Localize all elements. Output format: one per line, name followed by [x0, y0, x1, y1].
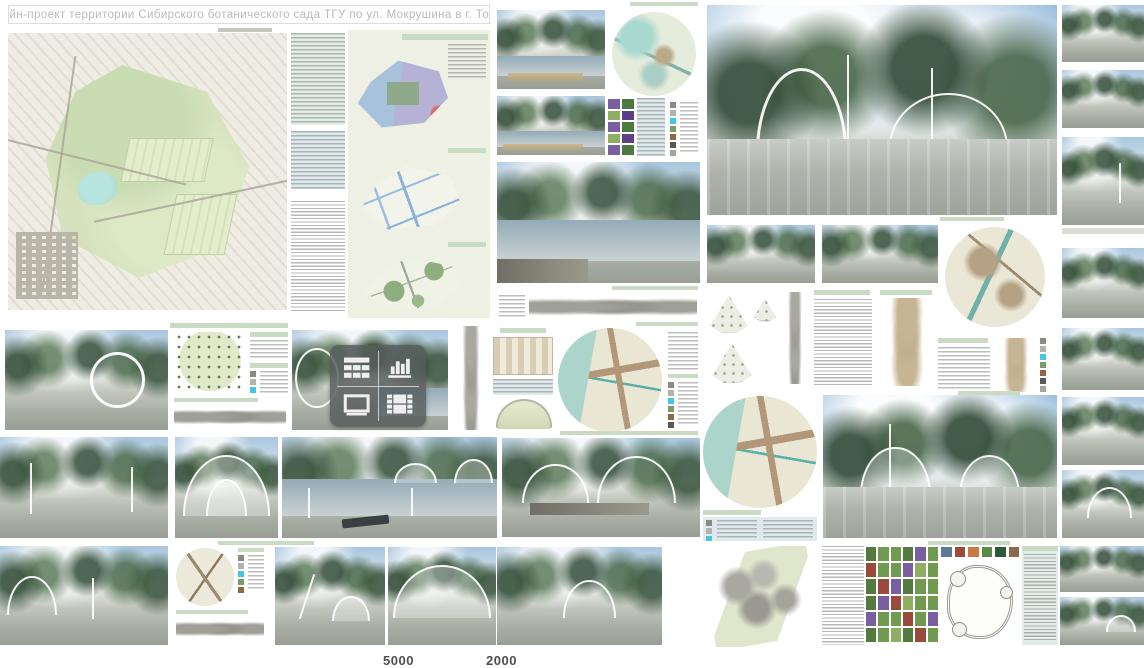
- siteplan-legend-lines: [260, 371, 288, 393]
- dome-frame-structure: [959, 455, 1020, 495]
- film-icon: [382, 390, 419, 420]
- render-pathway-2: [822, 225, 938, 283]
- furniture-row-header: [174, 398, 258, 402]
- wooden-deck: [503, 144, 583, 150]
- info-box-legend: [291, 131, 345, 189]
- render-arch-gate: [5, 330, 168, 430]
- planting-text-column: [822, 546, 864, 645]
- light-pole: [1119, 163, 1121, 203]
- render-tent-canopy: [388, 547, 496, 645]
- light-pole: [889, 424, 891, 498]
- masterplan-pond: [78, 172, 117, 205]
- render-lake-shoreline: [497, 162, 700, 283]
- render-playground: [497, 547, 662, 645]
- masterplan-map: [8, 33, 287, 310]
- greenhouse-axonometric: [703, 546, 818, 647]
- mast-structure: [299, 573, 315, 618]
- axon-sketches: [529, 293, 697, 321]
- plaza-caption: [560, 431, 698, 435]
- light-pole: [30, 463, 32, 514]
- light-pole: [847, 55, 849, 156]
- location-inset-map-4: [558, 328, 662, 432]
- notes-header: [1022, 546, 1058, 551]
- render-park-walkway: [0, 437, 168, 538]
- floor-plan: [493, 337, 553, 375]
- tensile-canopy: [522, 464, 589, 504]
- location-inset-map-2: [945, 227, 1045, 327]
- render-sculpture-corner: [275, 547, 385, 645]
- legend-chips: [668, 382, 676, 428]
- play-structure: [563, 580, 616, 617]
- cyan-light-marker: [1006, 501, 1015, 510]
- greenhouse-3d-sketch: [703, 546, 818, 647]
- plant-palette-small: [608, 99, 634, 155]
- furniture-sketches: [174, 405, 286, 429]
- sun-lounger: [342, 514, 390, 528]
- zoning-axonometric: [356, 56, 448, 132]
- detail-sketch-column: [455, 326, 487, 430]
- render-dome-garden: [175, 437, 278, 538]
- render-pond-deck-1: [497, 10, 605, 89]
- flower-bush: [968, 496, 994, 512]
- light-pole: [308, 488, 310, 518]
- planter-wall: [530, 503, 649, 515]
- detail-sketches: [176, 617, 264, 641]
- masterplan-caption: [218, 28, 272, 32]
- bar-chart-icon: [382, 353, 419, 383]
- legend-header: [938, 338, 988, 343]
- greenery-axonometric: [362, 254, 462, 314]
- legend-chips: [706, 520, 714, 540]
- info-text-paragraphs: [291, 201, 345, 313]
- ring-plan-panel: [941, 561, 1019, 645]
- map-legend-header: [703, 510, 761, 515]
- shore-dome-structure: [394, 463, 437, 483]
- masterplan-buildings: [16, 232, 77, 298]
- siteplan-panel: [172, 330, 290, 432]
- plant-palette-grid: [866, 547, 938, 642]
- axon-notes: [499, 295, 525, 319]
- info-box-description: [291, 33, 345, 125]
- legend-lines: [680, 102, 698, 152]
- lake-water: [282, 479, 497, 515]
- diagram-2-header: [448, 148, 486, 153]
- furniture-vignettes: [880, 298, 934, 386]
- detail-circle-plan: [176, 548, 234, 606]
- design-board-collage: Дизайн-проект территории Сибирского бота…: [0, 0, 1144, 664]
- pavilion-legend-chips: [1040, 338, 1058, 392]
- notes-lines: [1024, 554, 1056, 642]
- waterfront-section-caption: [630, 2, 698, 6]
- dimension-label-right: 2000: [486, 654, 517, 667]
- far-right-caption: [1062, 228, 1144, 234]
- greenhouse-plan-panel: [490, 326, 556, 432]
- render-meadow-structures: [0, 546, 168, 645]
- light-pole: [131, 467, 133, 511]
- legend-lines: [938, 347, 990, 389]
- canopy-arch-structure: [889, 93, 1008, 148]
- detail-legend-column: [666, 330, 700, 430]
- render-expo-plaza: [823, 395, 1057, 538]
- analysis-diagrams-panel: [348, 30, 490, 318]
- transport-axonometric: [360, 162, 460, 234]
- plan-node: [1000, 586, 1013, 599]
- page-title: Дизайн-проект территории Сибирского бота…: [8, 5, 490, 24]
- detail-plan-caption: [218, 541, 314, 545]
- greenhouse-dome-sketch: [496, 399, 552, 429]
- assembly-sketch-column: [782, 292, 808, 384]
- site-plan-drawing: [174, 332, 246, 394]
- siteplan-caption: [170, 323, 288, 328]
- beach-strip: [497, 259, 588, 283]
- siteplan-legend-header-1: [250, 332, 288, 337]
- diagram-1-legend: [448, 44, 486, 78]
- tensile-canopy: [597, 456, 676, 504]
- plan-header: [500, 328, 546, 333]
- detail-legend-lines: [248, 555, 264, 591]
- render-far-right-2: [1062, 70, 1144, 128]
- legend-header: [668, 374, 698, 378]
- legend-lines: [678, 382, 698, 426]
- pathway-section-caption: [940, 217, 1004, 221]
- pavilion-legend-text: [938, 338, 992, 392]
- render-far-right-3: [1062, 137, 1144, 225]
- siteplan-legend-lines: [250, 340, 288, 360]
- render-far-right-5: [1062, 328, 1144, 390]
- axonometric-strip-caption: [612, 286, 698, 290]
- legend-lines: [763, 520, 813, 538]
- image-icon: [338, 390, 375, 420]
- legend-lines: [717, 520, 757, 538]
- plan-legend: [493, 379, 553, 395]
- render-small-right-4: [1060, 597, 1144, 645]
- pavilion-plan-1: [709, 294, 749, 334]
- tensile-structure: [7, 576, 57, 616]
- info-column: [291, 33, 345, 315]
- pavilion-plan-3: [711, 342, 753, 384]
- render-far-right-4: [1062, 248, 1144, 318]
- pavilion-vignettes-column: [878, 290, 936, 388]
- text-column-header: [814, 290, 870, 295]
- wide-canopy: [393, 565, 490, 618]
- masterplan-field-1: [120, 138, 213, 182]
- render-main-entrance: [707, 5, 1057, 215]
- circular-gate-structure: [90, 352, 145, 408]
- light-pole: [931, 68, 933, 152]
- render-pathway-1: [707, 225, 815, 283]
- text-column-lines: [814, 299, 872, 385]
- planting-notes-column: [1022, 546, 1058, 645]
- lake-water: [497, 220, 700, 261]
- material-swatches: [941, 547, 1019, 557]
- location-inset-map-1: [612, 12, 696, 96]
- vignette-header: [880, 290, 932, 295]
- render-small-right-3: [1060, 546, 1144, 592]
- legend-lines: [668, 332, 698, 370]
- pavilion-plans: [705, 292, 779, 388]
- light-pole: [92, 578, 94, 620]
- detail-map-caption: [636, 322, 698, 326]
- render-lake-loungers: [282, 437, 497, 538]
- render-small-right-1: [1062, 397, 1144, 465]
- exploded-axonometric-strip: [497, 291, 700, 323]
- pavilion-dome-sketch: [996, 338, 1036, 392]
- location-inset-map-3: [703, 396, 817, 508]
- detail-legend-chips: [238, 555, 246, 593]
- detail-row-header: [176, 610, 248, 614]
- siteplan-legend-chips: [250, 371, 258, 395]
- small-dome: [332, 596, 369, 621]
- detail-legend-header: [238, 548, 264, 552]
- dimension-label-left: 5000: [383, 654, 414, 667]
- entrance-arch-structure: [756, 68, 847, 152]
- plan-node: [952, 622, 967, 637]
- diagram-1-header: [402, 34, 488, 40]
- render-far-right-1: [1062, 5, 1144, 62]
- light-pole: [411, 488, 413, 516]
- map-legend-box: [703, 517, 817, 541]
- shore-dome-structure: [454, 459, 493, 483]
- plant-list-box: [637, 98, 665, 156]
- render-pond-deck-2: [497, 96, 605, 155]
- table-icon: [338, 353, 375, 383]
- dome-frame-structure: [860, 447, 930, 496]
- wooden-deck: [508, 73, 584, 81]
- pavilion-text-column: [812, 290, 874, 388]
- pavilion-plan-2: [753, 298, 777, 322]
- legend-chips: [670, 102, 678, 154]
- render-canopy-plaza: [502, 438, 700, 537]
- materials-legend: [668, 98, 700, 156]
- planting-section-caption: [928, 541, 1010, 545]
- arch-structure: [1087, 487, 1132, 518]
- diagram-3-header: [448, 242, 486, 247]
- siteplan-legend-header-2: [250, 363, 288, 368]
- render-small-right-2: [1062, 470, 1144, 538]
- media-types-badge: [330, 345, 426, 427]
- dome-structure: [1106, 615, 1136, 631]
- detail-plan-panel: [172, 546, 268, 645]
